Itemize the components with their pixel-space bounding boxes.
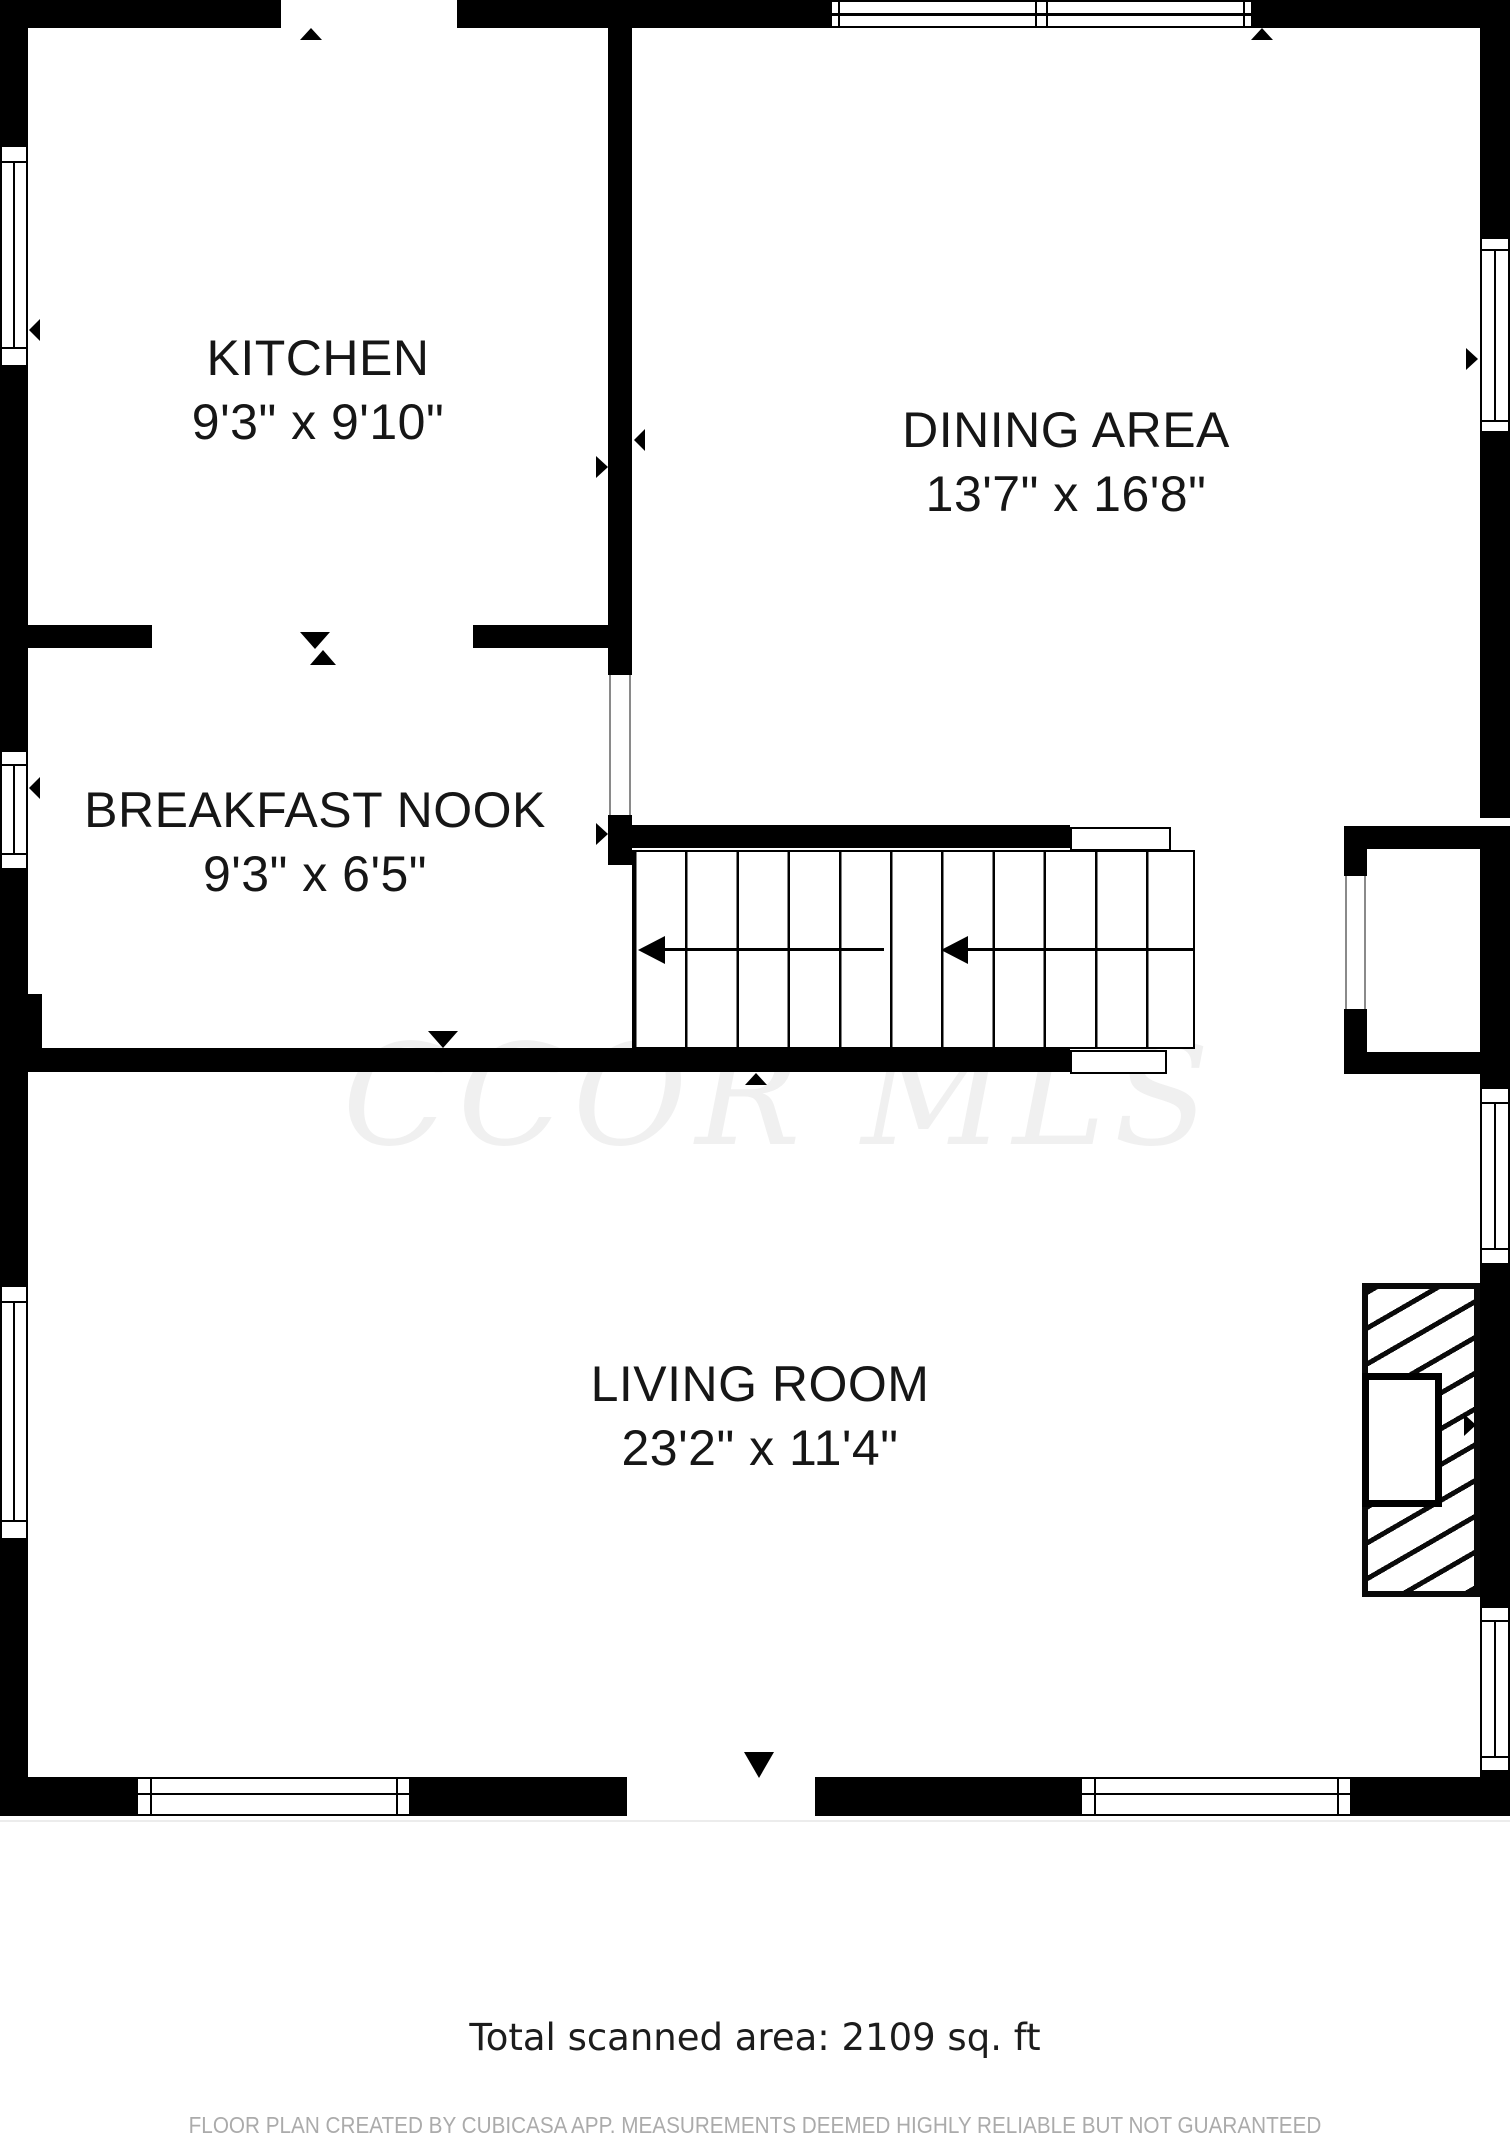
wall-bottom-right [1352,1777,1510,1816]
window-right-dining [1480,237,1510,433]
stairs-direction-line-1 [662,948,884,951]
door-marker-top-right [1251,28,1273,40]
wall-top-left [0,0,281,28]
door-marker-nook-lower [310,650,336,665]
door-marker-bottom-opening [744,1752,774,1778]
wall-right-1 [1480,28,1510,237]
wall-stairs-top [632,825,1070,848]
room-label-kitchen: KITCHEN 9'3" x 9'10" [192,326,444,454]
stairs-direction-arrow-1 [638,936,665,964]
wall-living-top [0,1048,1070,1072]
wall-kitchen-dining [608,28,632,675]
doorway-line-right [629,675,631,815]
window-right-hall [1480,1087,1510,1265]
stairs-direction-arrow-2 [941,936,968,964]
room-label-nook: BREAKFAST NOOK 9'3" x 6'5" [84,778,546,906]
closet-opening-line-left [1345,876,1347,1009]
door-marker-dining-side [634,429,645,451]
room-name: DINING AREA [902,398,1230,462]
floor-plan: CCOR MLS [0,0,1510,2134]
window-left-living [0,1285,28,1540]
window-bottom-right [1080,1777,1352,1816]
disclaimer-text: FLOOR PLAN CREATED BY CUBICASA APP. MEAS… [189,2112,1322,2134]
wall-bottom-mid1 [411,1777,627,1816]
wall-left-4 [0,1540,28,1777]
wall-left-2 [0,367,28,750]
room-name: BREAKFAST NOOK [84,778,546,842]
closet-stub-upper [1344,849,1367,876]
window-marker-dining-right [1466,348,1478,370]
stairs-landing-top [1070,827,1171,851]
bottom-shadow-line [0,1820,1510,1822]
wall-nook-left [28,625,152,648]
wall-right-2 [1480,433,1510,818]
room-label-dining: DINING AREA 13'7" x 16'8" [902,398,1230,526]
doorway-line-left [609,675,611,815]
door-marker-living-top [745,1073,767,1085]
room-name: KITCHEN [192,326,444,390]
wall-bottom-mid2 [815,1777,1080,1816]
room-dimensions: 9'3" x 9'10" [192,390,444,454]
door-marker-hall [596,823,608,845]
wall-left-3 [0,870,28,1285]
window-left-nook [0,750,28,870]
wall-right-3 [1480,826,1510,1087]
door-marker-kitchen-side [596,456,608,478]
room-dimensions: 23'2" x 11'4" [591,1416,930,1480]
wall-left-1 [0,28,28,145]
window-top-dining [830,0,1253,28]
window-marker-nook-left [29,777,40,799]
wall-stairs-top-stub [608,815,632,865]
room-name: LIVING ROOM [591,1352,930,1416]
wall-nook-right [473,625,608,648]
wall-top-mid [457,0,830,28]
marker-fireplace [1464,1414,1476,1436]
stairs-direction-line-2 [968,948,1193,951]
door-marker-living-right-end [428,1031,458,1048]
closet-wall-bottom [1344,1052,1482,1074]
window-right-living [1480,1606,1510,1772]
window-left-kitchen [0,145,28,367]
window-bottom-left [136,1777,411,1816]
fireplace-firebox [1362,1373,1442,1507]
door-marker-nook-upper [300,632,330,649]
closet-stub-lower [1344,1009,1367,1052]
wall-right-4 [1480,1265,1510,1606]
door-marker-top-opening [300,28,322,40]
wall-bottom-left [0,1777,136,1816]
room-label-living: LIVING ROOM 23'2" x 11'4" [591,1352,930,1480]
closet-opening-line-right [1364,876,1366,1009]
stairs-landing-bottom [1070,1050,1167,1074]
window-marker-kitchen-left [29,319,40,341]
room-dimensions: 9'3" x 6'5" [84,842,546,906]
closet-wall-top [1344,826,1482,849]
room-dimensions: 13'7" x 16'8" [902,462,1230,526]
total-scanned-area: Total scanned area: 2109 sq. ft [469,2016,1040,2059]
wall-top-right [1253,0,1510,28]
